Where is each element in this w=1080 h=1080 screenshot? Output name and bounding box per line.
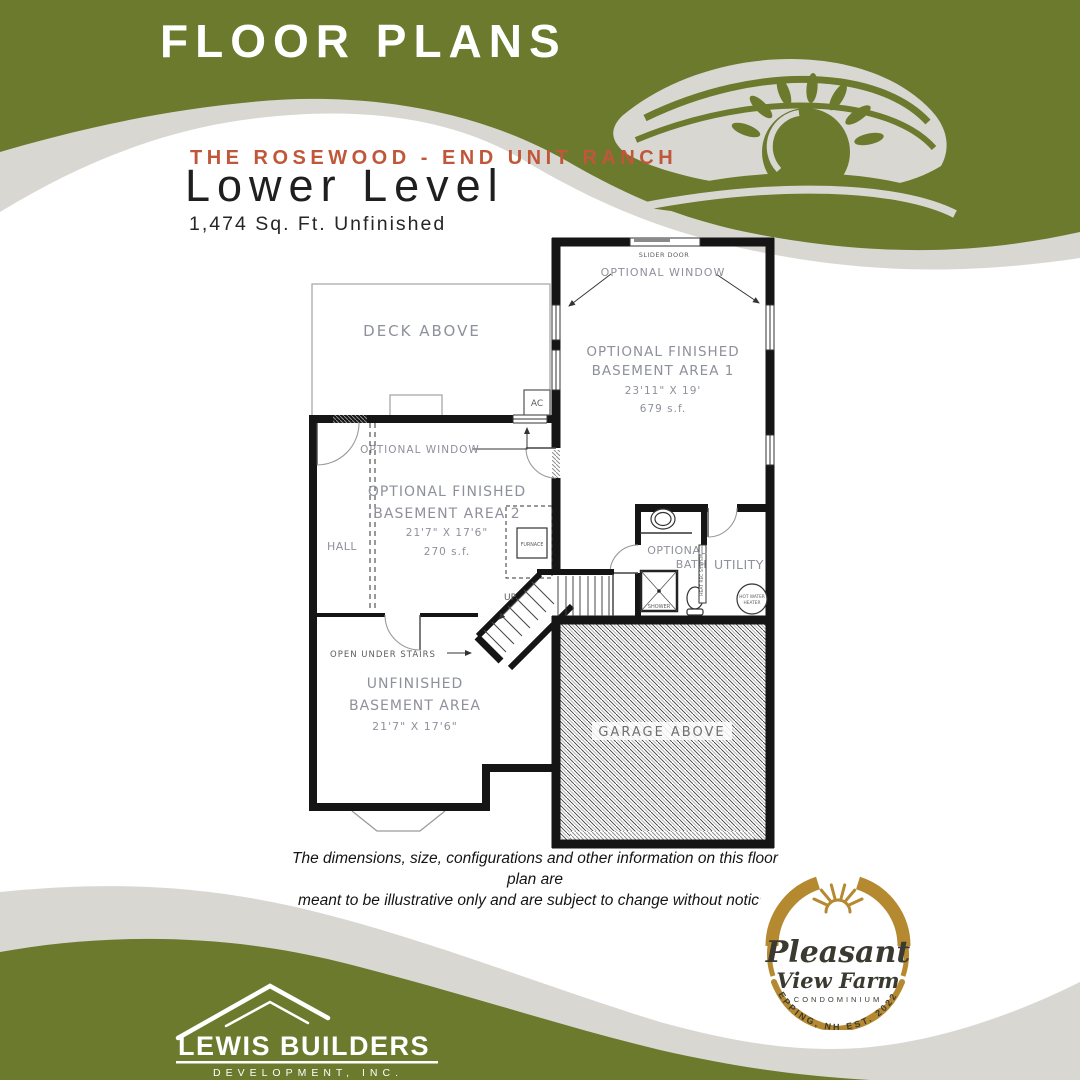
pleasant-view-farm-logo: Pleasant View Farm CONDOMINIUM EPPING, N… xyxy=(748,850,928,1030)
builder-subtitle: DEVELOPMENT, INC. xyxy=(213,1067,403,1079)
unfinished-label-1: UNFINISHED xyxy=(367,676,464,692)
area2-dims: 21'7" X 17'6" xyxy=(406,527,488,539)
furnace-label: FURNACE xyxy=(521,542,544,548)
area2-label-1: OPTIONAL FINISHED xyxy=(368,484,526,500)
toilet xyxy=(640,509,692,533)
annotation-arrows xyxy=(447,274,759,653)
level-title: Lower Level xyxy=(185,160,505,212)
area1-label-2: BASEMENT AREA 1 xyxy=(592,363,735,379)
area2-label-2: BASEMENT AREA 2 xyxy=(373,506,520,522)
farm-subtitle: CONDOMINIUM xyxy=(794,995,882,1004)
farm-name-line-2: View Farm xyxy=(776,968,899,993)
slider-door xyxy=(630,238,700,246)
optional-window-label-2: OPTIONAL WINDOW xyxy=(360,444,480,456)
deck-outline xyxy=(312,284,550,416)
unfinished-label-2: BASEMENT AREA xyxy=(349,698,481,714)
optional-window-label-1: OPTIONAL WINDOW xyxy=(601,266,726,279)
utility-label: UTILITY xyxy=(714,557,764,572)
hall-label: HALL xyxy=(327,540,357,553)
ac-label: AC xyxy=(531,399,543,409)
logo-divider xyxy=(176,1061,438,1064)
bath-label-1: OPTIONAL xyxy=(647,544,707,557)
wall-hatch-segment-2 xyxy=(552,450,560,478)
bulkhead-outline xyxy=(352,811,445,831)
open-under-stairs-label: OPEN UNDER STAIRS xyxy=(330,650,436,660)
deck-label: DECK ABOVE xyxy=(363,322,481,340)
hwh-label-1: HOT WATER xyxy=(739,594,765,600)
area1-sqft: 679 s.f. xyxy=(640,403,686,415)
hwh-label-2: HEATER xyxy=(744,600,761,606)
area1-label-1: OPTIONAL FINISHED xyxy=(586,344,739,360)
area2-sqft: 270 s.f. xyxy=(424,546,470,558)
flyer-canvas: FLOOR PLANS THE ROSEWOOD - END UNIT RANC… xyxy=(0,0,1080,1080)
garage-label: GARAGE ABOVE xyxy=(598,725,725,740)
unfinished-dims: 21'7" X 17'6" xyxy=(372,720,458,733)
farm-name-line-1: Pleasant xyxy=(765,935,911,970)
floor-plan-drawing: SLIDER DOOR OPTIONAL WINDOW OPTIONAL FIN… xyxy=(300,230,790,862)
hrv-label: HEAT REC SYSTEM xyxy=(699,554,705,596)
shower-label: SHOWER xyxy=(648,604,671,610)
slider-door-label: SLIDER DOOR xyxy=(639,251,690,259)
builder-name: LEWIS BUILDERS xyxy=(178,1031,430,1061)
up-label: UP xyxy=(504,593,517,603)
page-title: FLOOR PLANS xyxy=(160,14,567,68)
area1-dims: 23'11" X 19' xyxy=(625,385,702,397)
lewis-builders-logo: LEWIS BUILDERS DEVELOPMENT, INC. xyxy=(168,976,468,1080)
wall-hatch-segment xyxy=(333,415,367,423)
